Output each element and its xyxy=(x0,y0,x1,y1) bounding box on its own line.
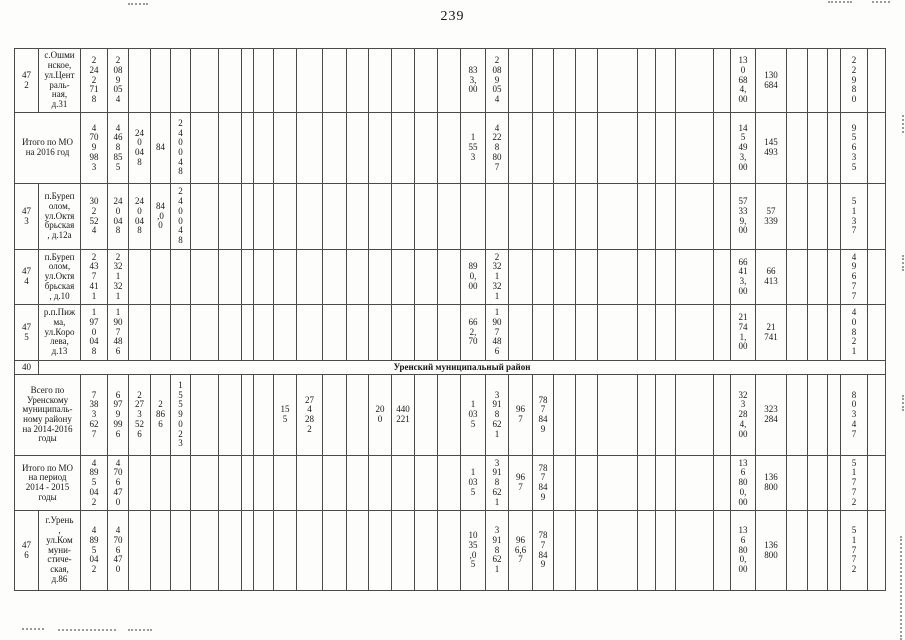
empty-cell xyxy=(297,184,323,250)
empty-cell xyxy=(828,113,841,184)
empty-cell xyxy=(129,49,151,113)
empty-cell xyxy=(297,113,323,184)
value-cell: 4 70 9 98 3 xyxy=(81,113,108,184)
empty-cell xyxy=(554,250,576,305)
empty-cell xyxy=(297,305,323,361)
empty-cell xyxy=(576,375,598,456)
empty-cell xyxy=(274,250,297,305)
value-cell: 2 32 1 32 1 xyxy=(486,250,509,305)
row-40-section: 40Уренский муниципальный район xyxy=(15,361,886,375)
empty-cell xyxy=(242,184,254,250)
empty-cell xyxy=(369,250,392,305)
value-cell: 96 7 xyxy=(509,375,533,456)
empty-cell xyxy=(787,184,808,250)
scan-artifact xyxy=(22,628,44,630)
page-number: 239 xyxy=(0,9,905,25)
empty-cell xyxy=(868,456,886,511)
scan-artifact xyxy=(872,1,890,3)
value-cell: 57 33 9, 00 xyxy=(731,184,756,250)
scan-artifact xyxy=(58,629,116,631)
empty-cell xyxy=(392,456,415,511)
empty-cell xyxy=(129,250,151,305)
empty-cell xyxy=(808,511,828,591)
value-cell: 2 08 9 05 4 xyxy=(108,49,129,113)
value-cell: 1 97 0 04 8 xyxy=(81,305,108,361)
empty-cell xyxy=(676,49,714,113)
empty-cell xyxy=(787,375,808,456)
empty-cell xyxy=(828,456,841,511)
empty-cell xyxy=(323,305,347,361)
empty-cell xyxy=(242,113,254,184)
empty-cell xyxy=(868,49,886,113)
value-cell: 20 0 xyxy=(369,375,392,456)
empty-cell xyxy=(297,511,323,591)
empty-cell xyxy=(129,511,151,591)
empty-cell xyxy=(714,305,731,361)
empty-cell xyxy=(676,184,714,250)
empty-cell xyxy=(656,375,676,456)
empty-cell xyxy=(533,49,554,113)
value-cell: 2 24 2 71 8 xyxy=(81,49,108,113)
empty-cell xyxy=(297,250,323,305)
row-number-cell: 47 4 xyxy=(15,250,39,305)
empty-cell xyxy=(323,49,347,113)
value-cell: 13 0 68 4, 00 xyxy=(731,49,756,113)
value-cell: 136 800 xyxy=(756,511,787,591)
empty-cell xyxy=(714,184,731,250)
value-cell: 440 221 xyxy=(392,375,415,456)
empty-cell xyxy=(297,49,323,113)
empty-cell xyxy=(415,49,438,113)
address-cell: п.Буреп олом, ул.Октя брьская , д.10 xyxy=(39,250,81,305)
empty-cell xyxy=(323,250,347,305)
empty-cell xyxy=(598,49,638,113)
empty-cell xyxy=(347,184,369,250)
value-cell: 7 38 3 62 7 xyxy=(81,375,108,456)
empty-cell xyxy=(219,250,242,305)
empty-cell xyxy=(509,184,533,250)
empty-cell xyxy=(191,250,219,305)
empty-cell xyxy=(808,305,828,361)
empty-cell xyxy=(828,375,841,456)
empty-cell xyxy=(323,113,347,184)
empty-cell xyxy=(347,511,369,591)
value-cell: 78 7 84 9 xyxy=(533,456,554,511)
empty-cell xyxy=(171,250,191,305)
row-number-cell: 47 3 xyxy=(15,184,39,250)
value-cell: 57 339 xyxy=(756,184,787,250)
empty-cell xyxy=(714,250,731,305)
value-cell: 13 6 80 0, 00 xyxy=(731,456,756,511)
empty-cell xyxy=(533,305,554,361)
empty-cell xyxy=(242,49,254,113)
scan-artifact xyxy=(902,255,904,271)
empty-cell xyxy=(254,375,274,456)
empty-cell xyxy=(808,456,828,511)
empty-cell xyxy=(254,456,274,511)
row-total-mo-2014-2015: Итого по МО на период 2014 - 2015 годы4 … xyxy=(15,456,886,511)
empty-cell xyxy=(638,250,656,305)
value-cell: 4 46 8 85 5 xyxy=(108,113,129,184)
budget-table: 47 2с.Ошми нское, ул.Цент раль- ная, д.3… xyxy=(14,48,886,591)
empty-cell xyxy=(347,456,369,511)
value-cell: 136 800 xyxy=(756,456,787,511)
row-label-cell: Итого по МО на период 2014 - 2015 годы xyxy=(15,456,81,511)
empty-cell xyxy=(676,511,714,591)
empty-cell xyxy=(576,250,598,305)
empty-cell xyxy=(369,456,392,511)
empty-cell xyxy=(151,49,171,113)
value-cell: 4 9 6 7 7 xyxy=(841,250,868,305)
value-cell: 145 493 xyxy=(756,113,787,184)
empty-cell xyxy=(828,305,841,361)
empty-cell xyxy=(676,375,714,456)
empty-cell xyxy=(347,49,369,113)
value-cell: 66 2, 70 xyxy=(461,305,486,361)
empty-cell xyxy=(509,250,533,305)
empty-cell xyxy=(554,305,576,361)
empty-cell xyxy=(638,49,656,113)
value-cell: 2 2 9 8 0 xyxy=(841,49,868,113)
value-cell: 9 5 6 3 5 xyxy=(841,113,868,184)
value-cell: 1 90 7 48 6 xyxy=(486,305,509,361)
value-cell: 5 1 3 7 xyxy=(841,184,868,250)
scan-artifact xyxy=(128,3,148,5)
value-cell: 4 0 8 2 1 xyxy=(841,305,868,361)
empty-cell xyxy=(219,49,242,113)
empty-cell xyxy=(297,456,323,511)
empty-cell xyxy=(392,511,415,591)
empty-cell xyxy=(656,250,676,305)
empty-cell xyxy=(787,49,808,113)
empty-cell xyxy=(369,184,392,250)
empty-cell xyxy=(347,375,369,456)
value-cell: 3 91 8 62 1 xyxy=(486,456,509,511)
empty-cell xyxy=(533,184,554,250)
empty-cell xyxy=(191,113,219,184)
empty-cell xyxy=(191,49,219,113)
empty-cell xyxy=(415,511,438,591)
empty-cell xyxy=(868,305,886,361)
empty-cell xyxy=(714,49,731,113)
empty-cell xyxy=(242,305,254,361)
empty-cell xyxy=(554,375,576,456)
empty-cell xyxy=(347,250,369,305)
empty-cell xyxy=(151,456,171,511)
value-cell: 323 284 xyxy=(756,375,787,456)
empty-cell xyxy=(676,250,714,305)
empty-cell xyxy=(219,511,242,591)
empty-cell xyxy=(219,456,242,511)
empty-cell xyxy=(787,511,808,591)
empty-cell xyxy=(638,456,656,511)
empty-cell xyxy=(638,375,656,456)
value-cell: 1 03 5 xyxy=(461,375,486,456)
row-label-cell: Всего по Уренскому муниципаль- ному райо… xyxy=(15,375,81,456)
empty-cell xyxy=(828,184,841,250)
value-cell: 2 86 6 xyxy=(151,375,171,456)
empty-cell xyxy=(554,511,576,591)
value-cell: 83 3, 00 xyxy=(461,49,486,113)
empty-cell xyxy=(254,49,274,113)
empty-cell xyxy=(656,511,676,591)
empty-cell xyxy=(369,305,392,361)
empty-cell xyxy=(576,184,598,250)
empty-cell xyxy=(576,49,598,113)
empty-cell xyxy=(714,511,731,591)
row-473: 47 3п.Буреп олом, ул.Октя брьская , д.12… xyxy=(15,184,886,250)
empty-cell xyxy=(438,113,461,184)
empty-cell xyxy=(274,113,297,184)
empty-cell xyxy=(638,113,656,184)
row-total-mo-2016: Итого по МО на 2016 год4 70 9 98 34 46 8… xyxy=(15,113,886,184)
value-cell: 6 97 9 99 6 xyxy=(108,375,129,456)
address-cell: с.Ошми нское, ул.Цент раль- ная, д.31 xyxy=(39,49,81,113)
empty-cell xyxy=(274,305,297,361)
empty-cell xyxy=(219,184,242,250)
value-cell: 4 22 8 80 7 xyxy=(486,113,509,184)
value-cell: 5 1 7 7 2 xyxy=(841,511,868,591)
value-cell: 30 2 52 4 xyxy=(81,184,108,250)
value-cell: 8 0 3 4 7 xyxy=(841,375,868,456)
empty-cell xyxy=(369,113,392,184)
value-cell: 10 35 ,0 5 xyxy=(461,511,486,591)
empty-cell xyxy=(171,49,191,113)
empty-cell xyxy=(868,184,886,250)
empty-cell xyxy=(676,113,714,184)
row-number-cell: 47 6 xyxy=(15,511,39,591)
empty-cell xyxy=(242,511,254,591)
empty-cell xyxy=(274,511,297,591)
value-cell: 4 70 6 47 0 xyxy=(108,456,129,511)
row-472: 47 2с.Ошми нское, ул.Цент раль- ная, д.3… xyxy=(15,49,886,113)
empty-cell xyxy=(676,305,714,361)
value-cell: 4 70 6 47 0 xyxy=(108,511,129,591)
empty-cell xyxy=(254,184,274,250)
empty-cell xyxy=(808,184,828,250)
empty-cell xyxy=(438,375,461,456)
empty-cell xyxy=(347,305,369,361)
empty-cell xyxy=(438,184,461,250)
value-cell: 3 91 8 62 1 xyxy=(486,511,509,591)
empty-cell xyxy=(191,184,219,250)
empty-cell xyxy=(191,456,219,511)
scan-artifact xyxy=(902,395,904,411)
empty-cell xyxy=(415,305,438,361)
value-cell: 27 4 28 2 xyxy=(297,375,323,456)
value-cell: 21 74 1, 00 xyxy=(731,305,756,361)
empty-cell xyxy=(415,375,438,456)
value-cell: 96 7 xyxy=(509,456,533,511)
empty-cell xyxy=(242,456,254,511)
empty-cell xyxy=(415,250,438,305)
scan-artifact xyxy=(128,629,152,631)
empty-cell xyxy=(486,184,509,250)
empty-cell xyxy=(347,113,369,184)
empty-cell xyxy=(438,49,461,113)
empty-cell xyxy=(576,113,598,184)
empty-cell xyxy=(714,375,731,456)
empty-cell xyxy=(392,49,415,113)
value-cell: 2 32 1 32 1 xyxy=(108,250,129,305)
empty-cell xyxy=(509,305,533,361)
row-476: 47 6г.Урень , ул.Ком муни- стиче- ская, … xyxy=(15,511,886,591)
empty-cell xyxy=(598,511,638,591)
empty-cell xyxy=(656,49,676,113)
empty-cell xyxy=(533,250,554,305)
empty-cell xyxy=(868,375,886,456)
row-total-urensky-district: Всего по Уренскому муниципаль- ному райо… xyxy=(15,375,886,456)
empty-cell xyxy=(151,250,171,305)
value-cell: 66 41 3, 00 xyxy=(731,250,756,305)
empty-cell xyxy=(323,375,347,456)
empty-cell xyxy=(554,49,576,113)
empty-cell xyxy=(438,250,461,305)
empty-cell xyxy=(576,511,598,591)
value-cell: 2 27 3 52 6 xyxy=(129,375,151,456)
value-cell: 78 7 84 9 xyxy=(533,375,554,456)
value-cell: 24 0 04 8 xyxy=(129,113,151,184)
empty-cell xyxy=(171,305,191,361)
empty-cell xyxy=(598,456,638,511)
value-cell: 13 6 80 0, 00 xyxy=(731,511,756,591)
value-cell: 14 5 49 3, 00 xyxy=(731,113,756,184)
document-page: 239 47 2с.Ошми нское, ул.Цент раль- ная,… xyxy=(0,0,905,640)
empty-cell xyxy=(828,511,841,591)
address-cell: п.Буреп олом, ул.Октя брьская , д.12а xyxy=(39,184,81,250)
empty-cell xyxy=(369,511,392,591)
empty-cell xyxy=(676,456,714,511)
empty-cell xyxy=(151,305,171,361)
scan-artifact xyxy=(902,115,904,133)
value-cell: 24 0 04 8 xyxy=(129,184,151,250)
empty-cell xyxy=(598,250,638,305)
value-cell: 130 684 xyxy=(756,49,787,113)
value-cell: 2 4 0 0 4 8 xyxy=(171,113,191,184)
empty-cell xyxy=(323,511,347,591)
empty-cell xyxy=(438,305,461,361)
empty-cell xyxy=(415,184,438,250)
empty-cell xyxy=(323,456,347,511)
value-cell: 66 413 xyxy=(756,250,787,305)
value-cell: 84 ,0 0 xyxy=(151,184,171,250)
empty-cell xyxy=(219,375,242,456)
empty-cell xyxy=(656,456,676,511)
empty-cell xyxy=(656,305,676,361)
empty-cell xyxy=(787,113,808,184)
value-cell: 5 1 7 7 2 xyxy=(841,456,868,511)
empty-cell xyxy=(191,511,219,591)
empty-cell xyxy=(415,456,438,511)
empty-cell xyxy=(392,113,415,184)
empty-cell xyxy=(576,456,598,511)
value-cell: 84 xyxy=(151,113,171,184)
empty-cell xyxy=(191,375,219,456)
row-474: 47 4п.Буреп олом, ул.Октя брьская , д.10… xyxy=(15,250,886,305)
empty-cell xyxy=(254,250,274,305)
value-cell: 15 5 xyxy=(274,375,297,456)
value-cell: 89 0, 00 xyxy=(461,250,486,305)
empty-cell xyxy=(242,250,254,305)
empty-cell xyxy=(274,184,297,250)
empty-cell xyxy=(242,375,254,456)
row-number-cell: 47 2 xyxy=(15,49,39,113)
value-cell: 2 08 9 05 4 xyxy=(486,49,509,113)
empty-cell xyxy=(219,113,242,184)
empty-cell xyxy=(438,456,461,511)
empty-cell xyxy=(787,305,808,361)
value-cell: 1 55 3 xyxy=(461,113,486,184)
empty-cell xyxy=(392,305,415,361)
value-cell: 4 89 5 04 2 xyxy=(81,511,108,591)
empty-cell xyxy=(554,456,576,511)
empty-cell xyxy=(598,305,638,361)
empty-cell xyxy=(598,113,638,184)
empty-cell xyxy=(638,305,656,361)
empty-cell xyxy=(868,113,886,184)
empty-cell xyxy=(828,49,841,113)
value-cell: 24 0 04 8 xyxy=(108,184,129,250)
empty-cell xyxy=(129,305,151,361)
value-cell: 1 5 5 9 0 2 3 xyxy=(171,375,191,456)
row-label-cell: Итого по МО на 2016 год xyxy=(15,113,81,184)
value-cell: 32 3 28 4, 00 xyxy=(731,375,756,456)
empty-cell xyxy=(274,49,297,113)
address-cell: г.Урень , ул.Ком муни- стиче- ская, д.86 xyxy=(39,511,81,591)
empty-cell xyxy=(254,511,274,591)
empty-cell xyxy=(392,250,415,305)
empty-cell xyxy=(808,375,828,456)
empty-cell xyxy=(598,375,638,456)
empty-cell xyxy=(461,184,486,250)
address-cell: р.п.Пиж ма, ул.Коро лева, д.13 xyxy=(39,305,81,361)
empty-cell xyxy=(656,184,676,250)
empty-cell xyxy=(714,113,731,184)
value-cell: 2 43 7 41 1 xyxy=(81,250,108,305)
value-cell: 1 03 5 xyxy=(461,456,486,511)
value-cell: 1 90 7 48 6 xyxy=(108,305,129,361)
row-475: 47 5р.п.Пиж ма, ул.Коро лева, д.131 97 0… xyxy=(15,305,886,361)
empty-cell xyxy=(808,113,828,184)
empty-cell xyxy=(369,49,392,113)
empty-cell xyxy=(638,184,656,250)
empty-cell xyxy=(868,250,886,305)
scan-artifact xyxy=(828,1,852,3)
empty-cell xyxy=(171,456,191,511)
empty-cell xyxy=(554,113,576,184)
empty-cell xyxy=(415,113,438,184)
empty-cell xyxy=(254,113,274,184)
empty-cell xyxy=(808,49,828,113)
empty-cell xyxy=(656,113,676,184)
empty-cell xyxy=(828,250,841,305)
empty-cell xyxy=(254,305,274,361)
value-cell: 78 7 84 9 xyxy=(533,511,554,591)
empty-cell xyxy=(554,184,576,250)
empty-cell xyxy=(714,456,731,511)
empty-cell xyxy=(576,305,598,361)
value-cell: 2 4 0 0 4 8 xyxy=(171,184,191,250)
empty-cell xyxy=(274,456,297,511)
row-number-cell: 40 xyxy=(15,361,39,375)
empty-cell xyxy=(509,49,533,113)
empty-cell xyxy=(323,184,347,250)
empty-cell xyxy=(638,511,656,591)
empty-cell xyxy=(129,456,151,511)
empty-cell xyxy=(438,511,461,591)
empty-cell xyxy=(151,511,171,591)
value-cell: 3 91 8 62 1 xyxy=(486,375,509,456)
